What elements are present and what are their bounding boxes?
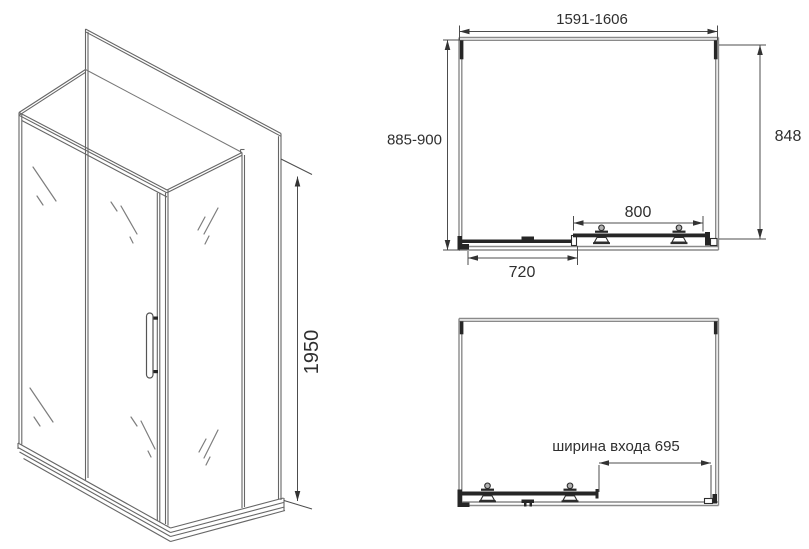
door-handle [147, 313, 159, 378]
back-panel [86, 29, 282, 500]
technical-drawing-canvas: 1950 [0, 0, 809, 549]
width-dimension: 1591-1606 [460, 11, 718, 40]
left-depth-dimension-label: 885-900 [387, 132, 442, 149]
glass-reflection-marks [30, 167, 218, 465]
fixed-panel-bar [458, 236, 577, 250]
bottom-rail [459, 502, 719, 506]
enclosure-outline [459, 38, 719, 251]
wall-profile-mark [460, 321, 464, 334]
plan-top-view: 1591-1606 885-900 848 800 [370, 0, 809, 295]
bottom-rail [459, 247, 719, 251]
height-dimension: 1950 [281, 159, 323, 509]
fixed-panel-dimension-label: 720 [509, 264, 536, 281]
sliding-door-bar-open [458, 489, 599, 507]
door-dimension: 800 [574, 204, 704, 232]
wall-profile-mark [714, 321, 718, 334]
fixed-panel-dimension: 720 [468, 246, 578, 281]
entrance-dimension-label: ширина входа 695 [552, 438, 680, 455]
isometric-view: 1950 [0, 0, 340, 549]
left-side-panel [19, 70, 86, 445]
wall-profile-mark [460, 40, 464, 59]
top-opening-edge [86, 70, 243, 153]
plan-open-view: ширина входа 695 [370, 295, 809, 549]
wall-profile-mark [714, 40, 718, 59]
enclosure-outline [459, 319, 719, 506]
front-door-panel [19, 113, 168, 526]
width-dimension-label: 1591-1606 [556, 11, 628, 28]
right-depth-dimension: 848 [719, 45, 801, 239]
height-dimension-label: 1950 [301, 330, 323, 375]
left-depth-dimension: 885-900 [387, 40, 460, 250]
right-depth-dimension-label: 848 [775, 128, 802, 145]
door-dimension-label: 800 [625, 204, 652, 221]
